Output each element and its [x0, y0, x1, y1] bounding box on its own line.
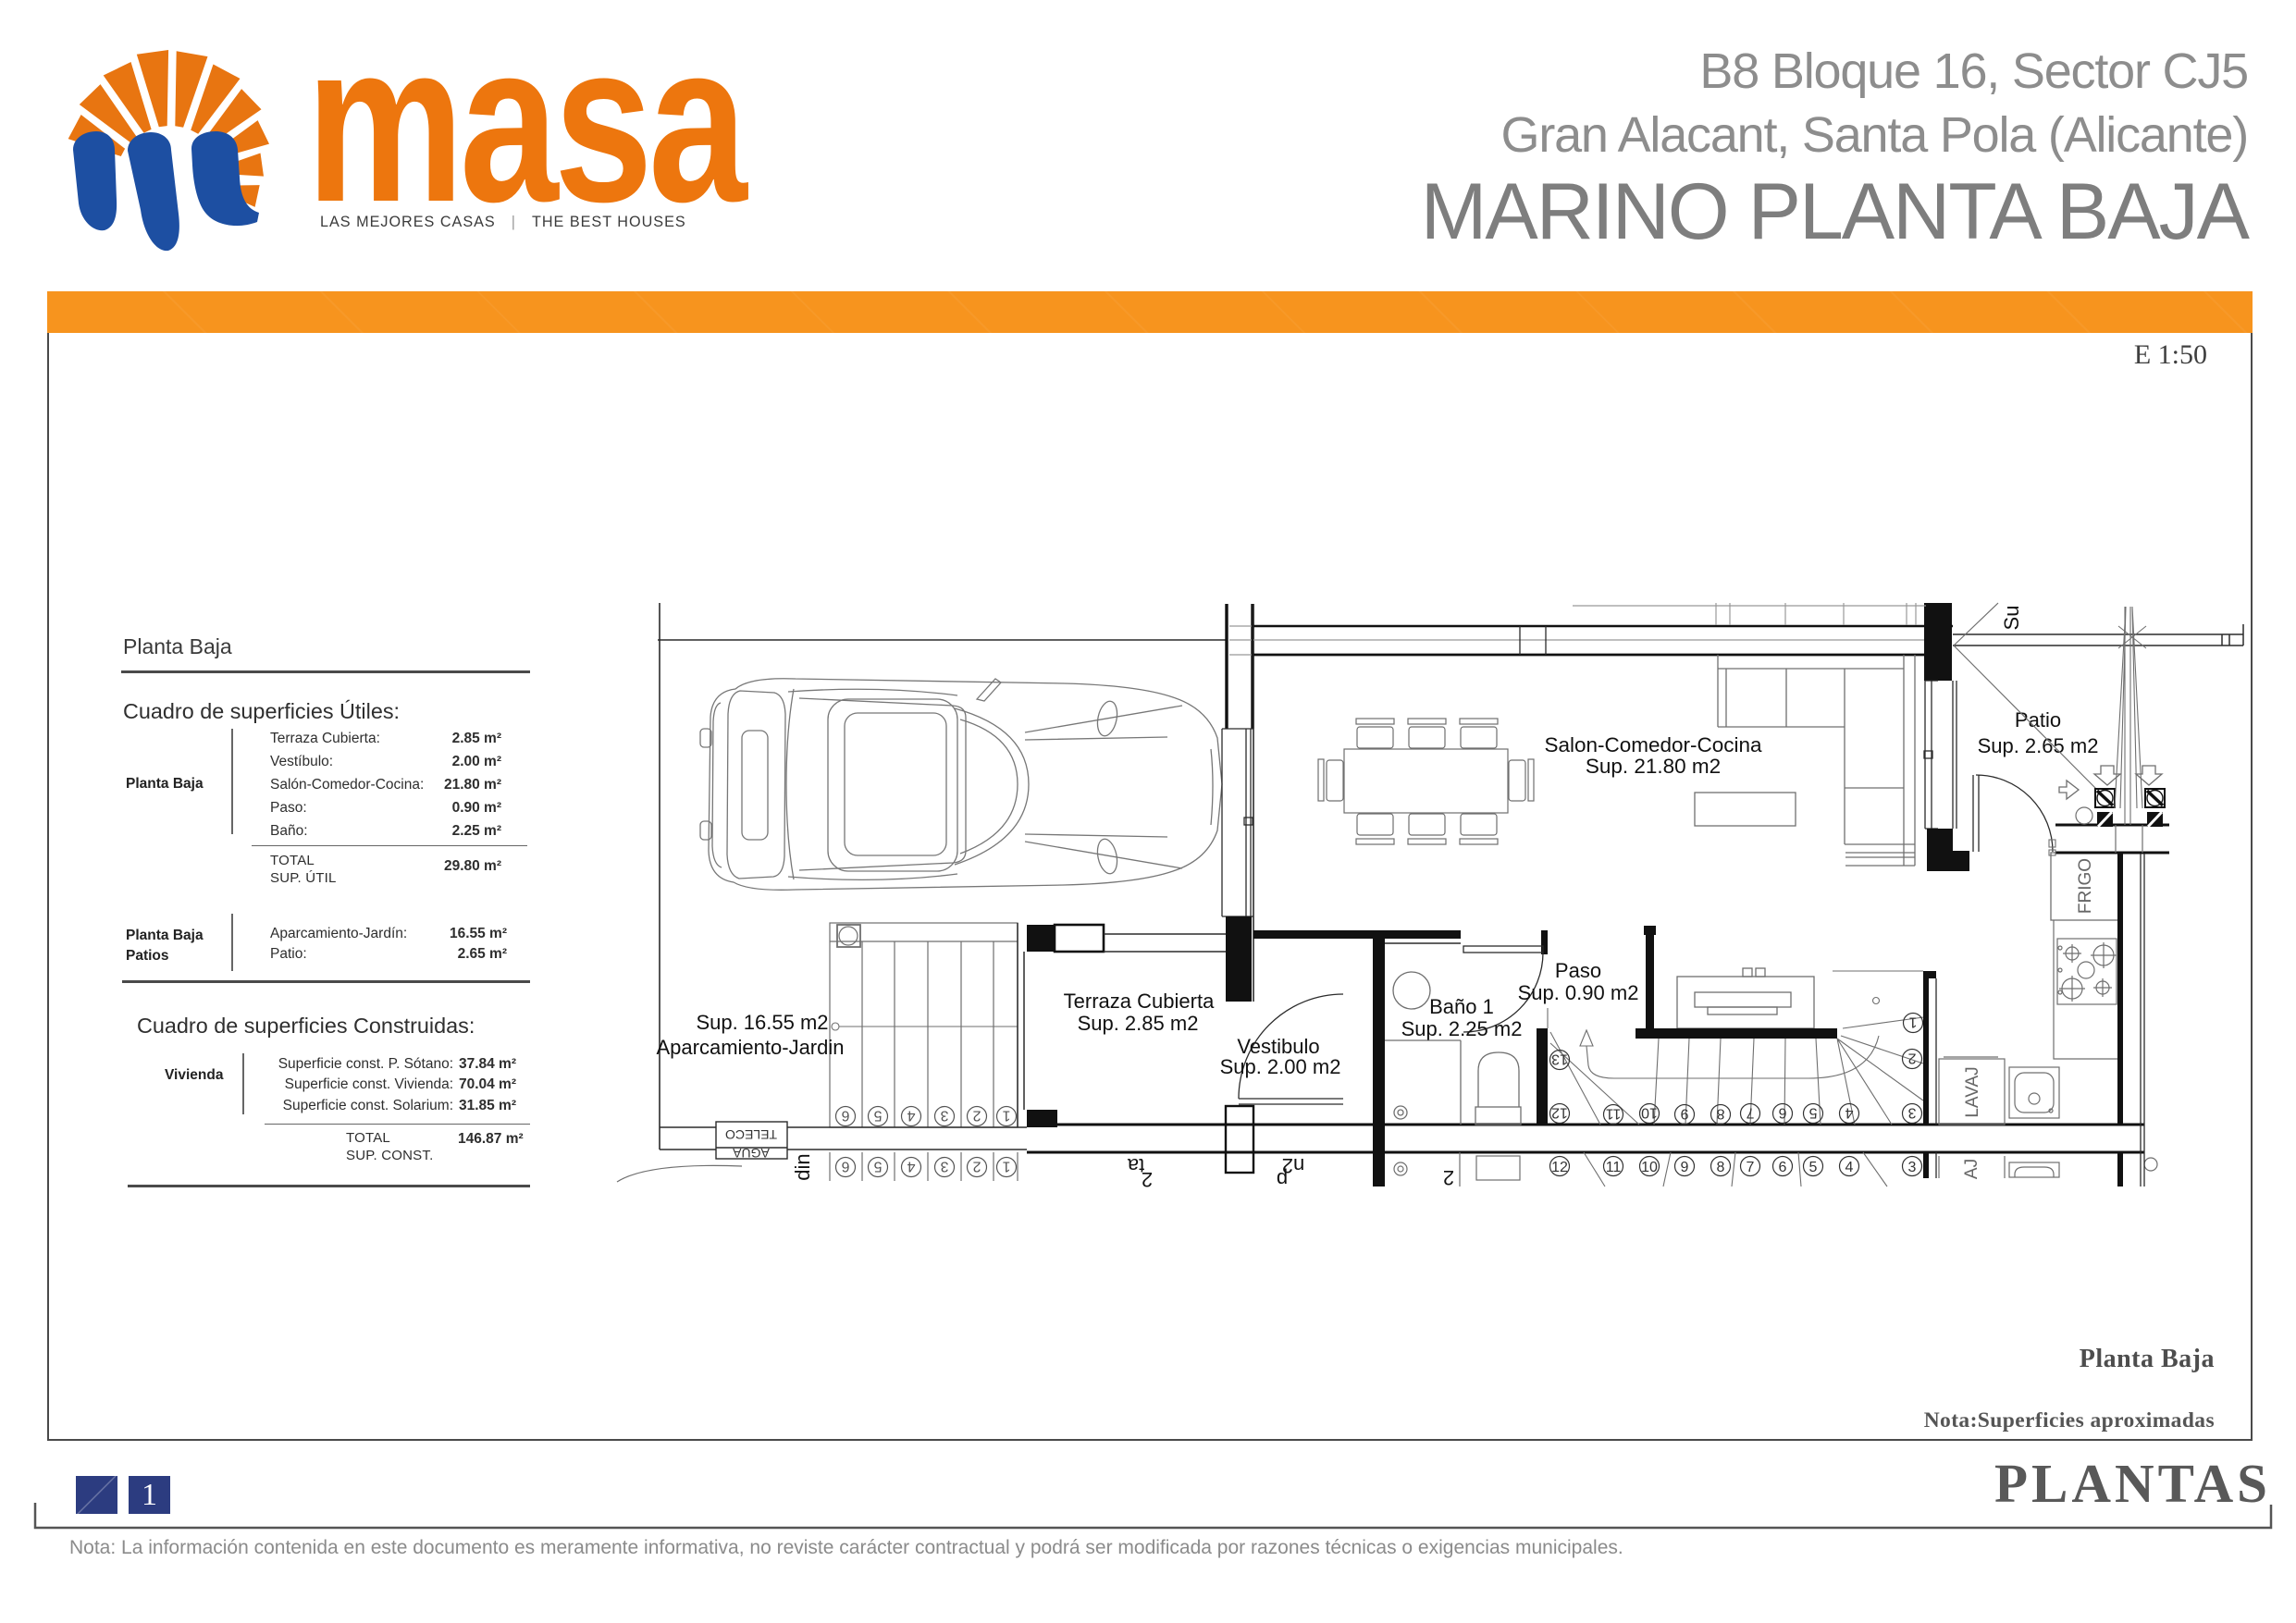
svg-text:3: 3 — [1908, 1160, 1917, 1175]
svg-text:5: 5 — [873, 1107, 882, 1123]
svg-text:Sup. 2.85 m2: Sup. 2.85 m2 — [1078, 1012, 1199, 1035]
svg-text:3: 3 — [940, 1107, 948, 1123]
svg-text:11: 11 — [1606, 1105, 1622, 1121]
svg-text:Paso: Paso — [1555, 959, 1601, 982]
svg-text:12: 12 — [1551, 1104, 1568, 1120]
svg-text:FRIGO: FRIGO — [2076, 858, 2095, 914]
svg-text:Sup. 2.65 m2: Sup. 2.65 m2 — [1978, 734, 2099, 757]
svg-text:3: 3 — [940, 1158, 948, 1174]
svg-text:4: 4 — [1845, 1160, 1854, 1175]
svg-text:TELECO: TELECO — [725, 1127, 777, 1142]
svg-text:4: 4 — [907, 1158, 915, 1174]
svg-text:1: 1 — [1002, 1158, 1010, 1174]
svg-text:AJ: AJ — [1962, 1159, 1981, 1179]
svg-text:Sup. 16.55 m2: Sup. 16.55 m2 — [696, 1011, 828, 1034]
svg-text:9: 9 — [1681, 1160, 1689, 1175]
svg-text:4: 4 — [907, 1107, 915, 1123]
svg-text:8: 8 — [1717, 1160, 1725, 1175]
svg-text:Patio: Patio — [2015, 708, 2061, 732]
svg-text:Sup. 2.00 m2: Sup. 2.00 m2 — [1220, 1055, 1341, 1078]
svg-text:Su: Su — [2000, 606, 2023, 631]
svg-text:11: 11 — [1606, 1160, 1622, 1175]
svg-text:5: 5 — [873, 1158, 882, 1174]
svg-text:Baño 1: Baño 1 — [1429, 995, 1494, 1018]
svg-text:6: 6 — [1778, 1104, 1786, 1120]
svg-text:4: 4 — [1845, 1104, 1853, 1120]
svg-text:6: 6 — [841, 1107, 849, 1123]
svg-text:10: 10 — [1641, 1160, 1658, 1175]
svg-text:Sup. 0.90 m2: Sup. 0.90 m2 — [1518, 981, 1639, 1004]
svg-text:2: 2 — [1443, 1166, 1454, 1189]
svg-text:AGUA: AGUA — [733, 1146, 770, 1161]
svg-text:Salon-Comedor-Cocina: Salon-Comedor-Cocina — [1544, 733, 1762, 756]
svg-text:2: 2 — [972, 1158, 981, 1174]
svg-text:7: 7 — [1747, 1160, 1755, 1175]
svg-text:Sup. 21.80 m2: Sup. 21.80 m2 — [1586, 755, 1721, 778]
svg-text:LAVAJ: LAVAJ — [1963, 1066, 1982, 1117]
svg-text:2: 2 — [1907, 1050, 1916, 1065]
svg-text:8: 8 — [1716, 1105, 1724, 1121]
svg-text:13: 13 — [1551, 1051, 1568, 1066]
svg-text:1: 1 — [1908, 1014, 1917, 1029]
svg-text:Aparcamiento-Jardin: Aparcamiento-Jardin — [657, 1036, 845, 1059]
svg-text:5: 5 — [1809, 1160, 1818, 1175]
svg-text:10: 10 — [1641, 1104, 1658, 1120]
svg-text:9: 9 — [1680, 1105, 1688, 1121]
svg-text:3: 3 — [1907, 1104, 1916, 1120]
svg-text:Terraza Cubierta: Terraza Cubierta — [1064, 990, 1215, 1013]
svg-text:din: din — [791, 1153, 814, 1180]
svg-text:2: 2 — [1142, 1168, 1153, 1191]
svg-text:5: 5 — [1808, 1104, 1817, 1120]
svg-text:Sup. 2.25 m2: Sup. 2.25 m2 — [1401, 1017, 1523, 1040]
svg-text:1: 1 — [1002, 1107, 1010, 1123]
svg-text:6: 6 — [1779, 1160, 1787, 1175]
svg-text:p: p — [1277, 1168, 1288, 1191]
svg-text:12: 12 — [1551, 1160, 1568, 1175]
svg-text:7: 7 — [1746, 1104, 1754, 1120]
svg-text:2: 2 — [972, 1107, 981, 1123]
svg-text:6: 6 — [841, 1158, 849, 1174]
